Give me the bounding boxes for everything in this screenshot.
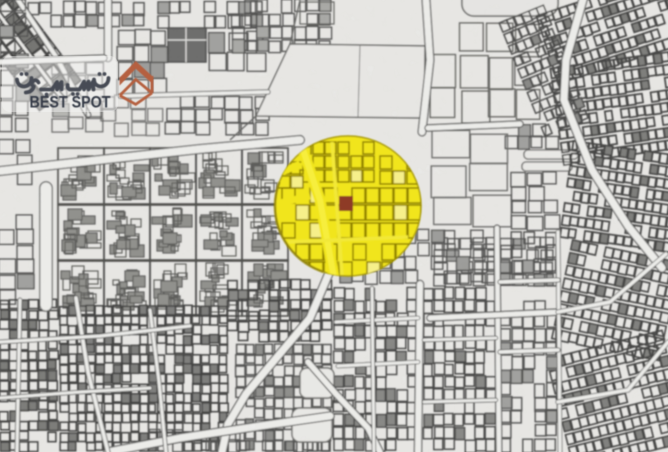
svg-text:BEST SPOT: BEST SPOT bbox=[30, 94, 111, 112]
